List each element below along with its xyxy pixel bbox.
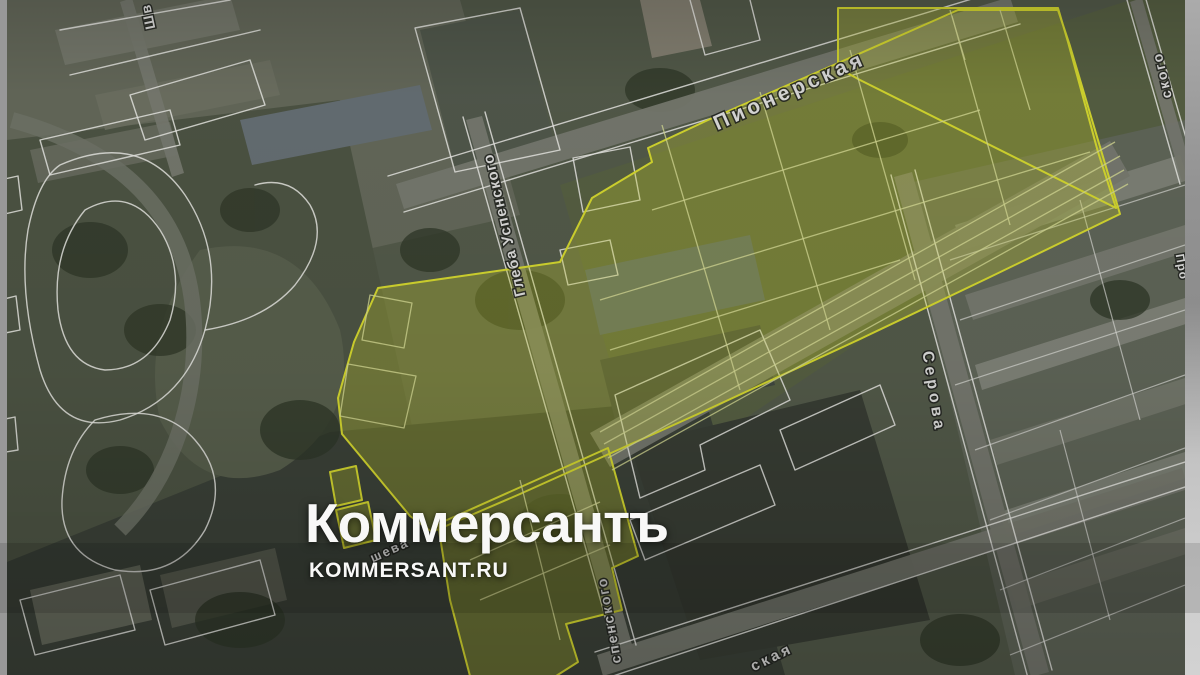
letterbox-right <box>1185 0 1200 675</box>
kommersant-site-url: KOMMERSANT.RU <box>309 560 509 581</box>
satellite-map: Пионерская Глеба Успенского Серова ского… <box>7 0 1185 675</box>
map-canvas: Пионерская Глеба Успенского Серова ского… <box>7 0 1185 675</box>
kommersant-logo: Коммерсантъ <box>305 496 668 551</box>
screenshot-stage: Пионерская Глеба Успенского Серова ского… <box>0 0 1200 675</box>
letterbox-left <box>0 0 7 675</box>
